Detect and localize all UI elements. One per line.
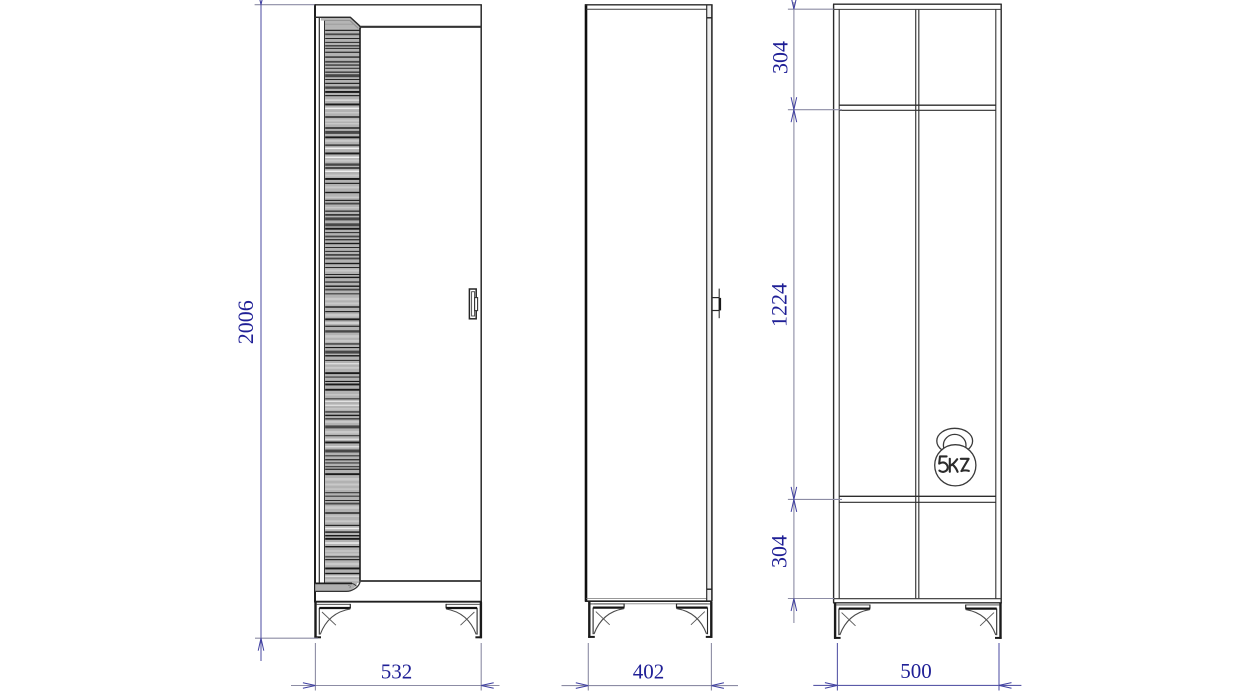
svg-text:304: 304: [768, 41, 793, 74]
svg-text:1224: 1224: [767, 283, 792, 327]
svg-text:304: 304: [766, 535, 791, 568]
svg-text:2006: 2006: [233, 300, 258, 344]
svg-text:402: 402: [633, 660, 665, 684]
svg-text:532: 532: [381, 660, 413, 684]
svg-text:500: 500: [900, 659, 932, 683]
